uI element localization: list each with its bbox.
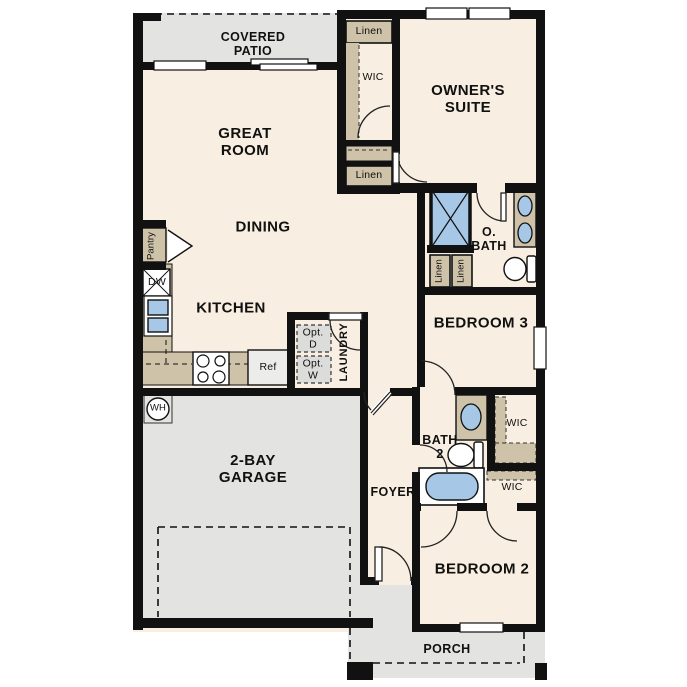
wall-wic-suite-upper <box>392 13 400 154</box>
wall-right-outer <box>536 10 545 632</box>
kitchen-sink-basin-2 <box>148 318 168 332</box>
wall-bed2-top-b <box>457 503 487 511</box>
pantry-closet <box>139 228 166 262</box>
wall-suite-bath-left <box>398 183 477 193</box>
bath2-toilet-bowl <box>448 444 474 467</box>
owners-suite-window-2 <box>469 8 510 19</box>
owners-suite-window-1 <box>426 8 467 19</box>
wall-obath-bedroom3 <box>417 287 536 295</box>
wall-left-outer <box>133 13 143 630</box>
wall-bath2-wic <box>487 395 495 471</box>
water-heater-circle <box>147 398 169 420</box>
wall-hall-east <box>417 183 425 387</box>
obath-sink-1 <box>518 196 532 216</box>
opt-washer-box <box>297 356 331 383</box>
wall-foyer-bedroom2 <box>412 472 420 632</box>
burner <box>198 372 208 382</box>
wall-under-wic <box>337 140 400 146</box>
linen-mid-box <box>346 166 392 186</box>
wall-pantry-bottom <box>133 262 166 270</box>
covered-patio-floor <box>141 13 337 64</box>
refrigerator-box <box>248 350 288 385</box>
laundry-door-leaf <box>329 313 362 320</box>
bedroom3-window <box>534 327 546 369</box>
obath-sink-2 <box>518 223 532 243</box>
obath-linen-2 <box>452 255 472 287</box>
obath-toilet-tank <box>527 256 536 282</box>
bath2-tub <box>426 473 478 500</box>
wall-bedroom3-bottom <box>455 387 536 395</box>
wall-above-linen <box>337 161 400 166</box>
wall-under-shower <box>427 245 474 253</box>
opt-dryer-box <box>297 325 331 352</box>
patio-slider-pane-2 <box>260 64 317 70</box>
obath-door-leaf <box>501 193 506 221</box>
porch-floor <box>348 626 545 678</box>
wall-garage-top <box>133 388 368 396</box>
linen-top-box <box>346 21 392 43</box>
obath-toilet-bowl <box>504 258 526 281</box>
porch-pillar-left <box>347 662 373 680</box>
coat-shelf-band <box>346 146 392 161</box>
wall-linen-bottom <box>337 186 400 194</box>
wall-laundry-left <box>287 312 295 396</box>
burner <box>213 371 225 383</box>
wic-shelf-strip <box>346 43 359 140</box>
porch-pillar-right <box>535 663 547 680</box>
wall-hall-stub <box>390 388 412 396</box>
wall-wic-wic <box>487 463 545 471</box>
wall-frontdoor-right <box>411 577 420 585</box>
wall-pantry-top <box>133 220 166 228</box>
wall-patio-stub <box>133 13 161 21</box>
bath2-toilet-tank <box>474 442 483 468</box>
obath-linen-1 <box>430 255 450 287</box>
burner <box>197 355 209 367</box>
greatroom-window <box>154 61 206 70</box>
burner <box>215 356 225 366</box>
wic-upper-shelf-left <box>495 397 506 445</box>
owners-suite-door-leaf <box>393 152 399 183</box>
wic-lower-shelf <box>487 471 536 480</box>
floor-plan-drawing <box>0 0 687 687</box>
bath2-sink <box>461 404 481 430</box>
wall-bed2-top-a <box>412 503 421 511</box>
wall-garage-foyer <box>360 312 368 583</box>
garage-floor <box>141 393 368 623</box>
bedroom2-window <box>460 623 503 632</box>
floor-plan: COVERED PATIO GREAT ROOM DINING KITCHEN … <box>0 0 687 687</box>
wall-garage-bottom <box>133 618 373 628</box>
front-door-leaf <box>375 547 382 581</box>
wall-hall-bath2-upper <box>412 387 420 445</box>
kitchen-sink-basin-1 <box>148 300 168 315</box>
wic-upper-shelf-bottom <box>495 443 536 463</box>
wall-bed2-top-c <box>517 503 536 511</box>
wall-suite-bath-right <box>505 183 536 193</box>
